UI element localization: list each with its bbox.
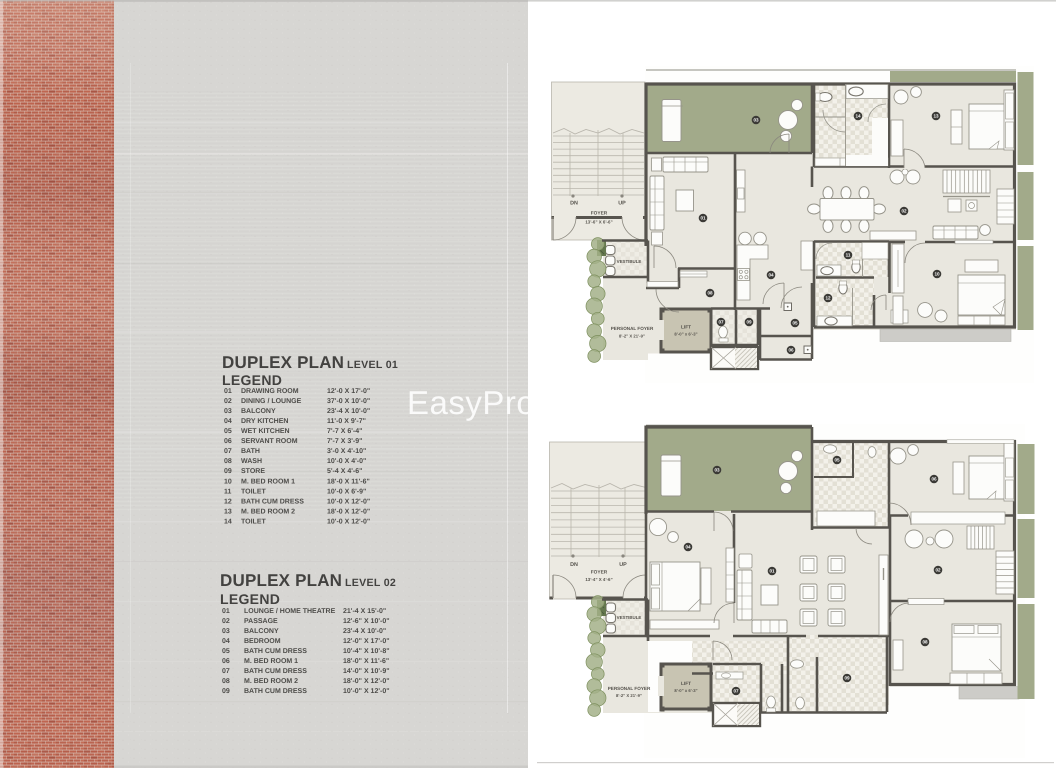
svg-text:10: 10 <box>224 478 232 485</box>
svg-text:18'-0" X 12'-0": 18'-0" X 12'-0" <box>343 678 390 685</box>
svg-text:09: 09 <box>746 320 752 325</box>
svg-text:VESTIBULE: VESTIBULE <box>617 259 642 264</box>
svg-text:06: 06 <box>224 438 232 445</box>
svg-text:BALCONY: BALCONY <box>244 628 279 635</box>
svg-text:10'-0 X 4'-0": 10'-0 X 4'-0" <box>327 458 366 465</box>
svg-text:05: 05 <box>834 458 840 463</box>
svg-text:FOYER: FOYER <box>591 570 608 576</box>
svg-text:WASH: WASH <box>241 458 262 465</box>
svg-text:DRAWING ROOM: DRAWING ROOM <box>241 388 299 395</box>
svg-text:8’-2” X 21’-9”: 8’-2” X 21’-9” <box>616 693 642 698</box>
svg-text:04: 04 <box>685 545 691 550</box>
svg-text:8’-0” x 6’-3”: 8’-0” x 6’-3” <box>674 688 697 693</box>
svg-text:04: 04 <box>224 418 232 425</box>
svg-text:18'-0" X 11'-6": 18'-0" X 11'-6" <box>343 658 389 665</box>
svg-text:DN: DN <box>570 562 578 568</box>
svg-text:BATH CUM DRESS: BATH CUM DRESS <box>244 688 307 695</box>
svg-text:5'-4 X 4'-6": 5'-4 X 4'-6" <box>327 468 362 475</box>
svg-text:BATH CUM DRESS: BATH CUM DRESS <box>244 648 307 655</box>
svg-text:07: 07 <box>224 448 232 455</box>
svg-text:01: 01 <box>700 216 706 221</box>
svg-text:02: 02 <box>222 618 230 625</box>
svg-text:01: 01 <box>222 608 230 615</box>
svg-text:03: 03 <box>753 118 759 123</box>
svg-text:13: 13 <box>224 508 232 515</box>
svg-text:UP: UP <box>619 562 627 568</box>
svg-text:TOILET: TOILET <box>241 519 266 526</box>
svg-text:03: 03 <box>224 408 232 415</box>
svg-text:M. BED ROOM 1: M. BED ROOM 1 <box>241 478 295 485</box>
svg-text:37'-0 X 10'-0": 37'-0 X 10'-0" <box>327 398 370 405</box>
svg-text:09: 09 <box>224 468 232 475</box>
svg-text:05: 05 <box>222 648 230 655</box>
svg-text:06: 06 <box>931 477 937 482</box>
svg-text:EasyProperti: EasyProperti <box>407 384 602 421</box>
svg-text:02: 02 <box>901 209 907 214</box>
svg-text:LIFT: LIFT <box>681 325 691 331</box>
svg-text:LEGEND: LEGEND <box>220 591 280 607</box>
svg-text:BATH CUM DRESS: BATH CUM DRESS <box>244 668 307 675</box>
svg-text:03: 03 <box>714 468 720 473</box>
svg-text:11'-0 X 9'-7": 11'-0 X 9'-7" <box>327 418 366 425</box>
svg-text:06: 06 <box>222 658 230 665</box>
svg-text:PASSAGE: PASSAGE <box>244 618 278 625</box>
svg-text:8’-0” x 6’-3”: 8’-0” x 6’-3” <box>674 332 697 337</box>
svg-text:3'-0 X 4'-10": 3'-0 X 4'-10" <box>327 448 366 455</box>
svg-text:09: 09 <box>222 688 230 695</box>
svg-text:18'-0 X 11'-6": 18'-0 X 11'-6" <box>327 478 370 485</box>
svg-text:12'-0" X 17'-0": 12'-0" X 17'-0" <box>343 638 390 645</box>
svg-text:11: 11 <box>846 253 851 258</box>
svg-text:DINING / LOUNGE: DINING / LOUNGE <box>241 397 302 405</box>
svg-text:DUPLEX PLAN: DUPLEX PLAN <box>222 353 344 372</box>
svg-text:04: 04 <box>768 273 774 278</box>
svg-text:12'-6" X 10'-0": 12'-6" X 10'-0" <box>343 618 390 625</box>
svg-text:12'-0 X 17'-0": 12'-0 X 17'-0" <box>327 388 370 395</box>
svg-text:07: 07 <box>222 668 230 675</box>
svg-text:LOUNGE / HOME THEATRE: LOUNGE / HOME THEATRE <box>244 607 336 615</box>
svg-text:12: 12 <box>224 498 232 505</box>
svg-text:M. BED ROOM 1: M. BED ROOM 1 <box>244 658 298 665</box>
svg-text:LEVEL 01: LEVEL 01 <box>347 359 398 371</box>
svg-text:08: 08 <box>922 640 928 645</box>
svg-text:12: 12 <box>825 296 831 301</box>
svg-text:08: 08 <box>707 291 713 296</box>
svg-text:13’-6” X 6’-6”: 13’-6” X 6’-6” <box>585 220 612 225</box>
svg-text:21'-4 X 15'-0": 21'-4 X 15'-0" <box>343 608 386 615</box>
svg-text:10: 10 <box>934 272 940 277</box>
svg-text:PERSONAL FOYER: PERSONAL FOYER <box>608 686 651 691</box>
svg-text:05: 05 <box>792 321 798 326</box>
svg-text:BATH: BATH <box>241 448 260 455</box>
svg-text:14'-0" X 10'-9": 14'-0" X 10'-9" <box>343 668 390 675</box>
svg-text:STORE: STORE <box>241 468 265 475</box>
svg-text:UP: UP <box>618 201 626 207</box>
svg-text:10'-0 X 6'-9": 10'-0 X 6'-9" <box>327 488 366 495</box>
svg-text:10'-4" X 10'-8": 10'-4" X 10'-8" <box>343 648 390 655</box>
svg-text:10'-0 X 12'-0": 10'-0 X 12'-0" <box>327 519 370 526</box>
svg-text:13: 13 <box>933 114 939 119</box>
svg-text:07: 07 <box>718 320 724 325</box>
svg-text:DN: DN <box>570 201 578 207</box>
svg-text:BALCONY: BALCONY <box>241 408 276 415</box>
svg-text:18'-0 X 12'-0": 18'-0 X 12'-0" <box>327 508 370 515</box>
svg-text:LEGEND: LEGEND <box>222 372 282 388</box>
svg-text:07: 07 <box>733 689 739 694</box>
svg-text:M. BED ROOM 2: M. BED ROOM 2 <box>244 678 298 685</box>
svg-text:08: 08 <box>224 458 232 465</box>
svg-text:FOYER: FOYER <box>591 211 608 217</box>
svg-text:DRY KITCHEN: DRY KITCHEN <box>241 418 288 425</box>
svg-text:23'-4 X 10'-0": 23'-4 X 10'-0" <box>343 628 386 635</box>
svg-text:7'-7 X 6'-4": 7'-7 X 6'-4" <box>327 428 362 435</box>
svg-text:8’-2” X 21’-9”: 8’-2” X 21’-9” <box>619 334 645 339</box>
svg-text:10'-0" X 12'-0": 10'-0" X 12'-0" <box>343 688 390 695</box>
svg-text:01: 01 <box>224 388 232 395</box>
svg-text:BATH CUM DRESS: BATH CUM DRESS <box>241 498 304 505</box>
svg-text:BEDROOM: BEDROOM <box>244 638 281 645</box>
svg-text:02: 02 <box>224 398 232 405</box>
svg-text:LEVEL 02: LEVEL 02 <box>345 577 396 589</box>
svg-text:14: 14 <box>855 114 861 119</box>
svg-text:11: 11 <box>224 488 232 495</box>
svg-text:SERVANT ROOM: SERVANT ROOM <box>241 438 298 445</box>
svg-text:PERSONAL FOYER: PERSONAL FOYER <box>611 326 654 331</box>
svg-text:03: 03 <box>222 628 230 635</box>
svg-text:05: 05 <box>224 428 232 435</box>
svg-text:08: 08 <box>222 678 230 685</box>
svg-text:06: 06 <box>788 348 794 353</box>
svg-text:TOILET: TOILET <box>241 488 266 495</box>
svg-text:7'-7 X 3'-9": 7'-7 X 3'-9" <box>327 438 362 445</box>
svg-text:M. BED ROOM 2: M. BED ROOM 2 <box>241 508 295 515</box>
svg-text:09: 09 <box>844 676 850 681</box>
svg-text:LIFT: LIFT <box>681 681 691 687</box>
svg-text:04: 04 <box>222 638 230 645</box>
svg-text:WET KITCHEN: WET KITCHEN <box>241 428 290 435</box>
svg-text:14: 14 <box>224 519 232 526</box>
svg-text:DUPLEX PLAN: DUPLEX PLAN <box>220 571 342 590</box>
svg-text:02: 02 <box>935 568 941 573</box>
svg-text:23'-4 X 10'-0": 23'-4 X 10'-0" <box>327 408 370 415</box>
svg-text:01: 01 <box>769 569 775 574</box>
svg-text:10'-0 X 12'-0": 10'-0 X 12'-0" <box>327 498 370 505</box>
svg-text:13’-4” X 4’-6”: 13’-4” X 4’-6” <box>585 577 612 582</box>
svg-text:VESTIBULE: VESTIBULE <box>617 615 642 620</box>
